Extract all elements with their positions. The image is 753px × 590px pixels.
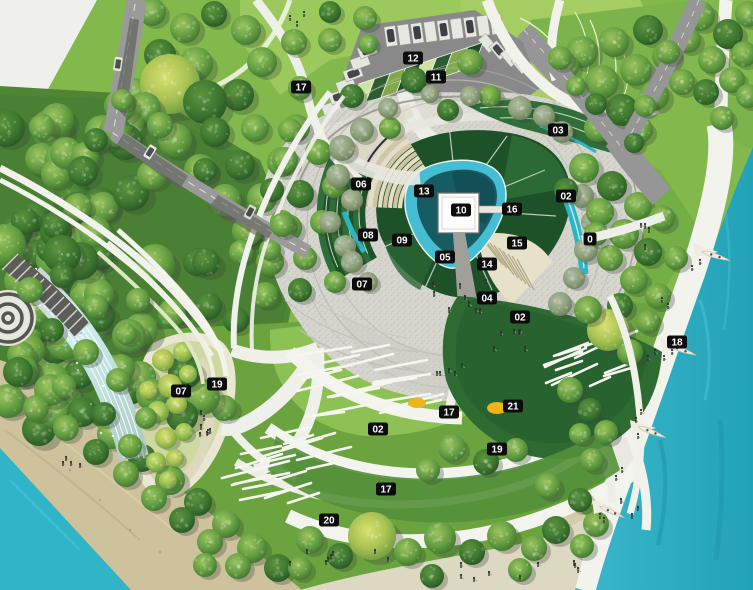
svg-text:09: 09 [396,236,408,247]
svg-text:16: 16 [506,205,518,216]
svg-text:20: 20 [323,516,335,527]
svg-text:0: 0 [587,235,593,246]
svg-text:17: 17 [295,83,307,94]
svg-text:18: 18 [671,338,683,349]
svg-text:03: 03 [552,126,564,137]
svg-text:14: 14 [481,260,493,271]
svg-text:11: 11 [431,73,442,84]
svg-text:07: 07 [175,387,187,398]
svg-text:04: 04 [481,294,493,305]
svg-text:02: 02 [372,425,384,436]
svg-text:07: 07 [356,280,368,291]
svg-text:15: 15 [511,239,523,250]
svg-text:19: 19 [211,380,223,391]
svg-text:08: 08 [362,231,374,242]
svg-text:05: 05 [439,253,451,264]
svg-text:19: 19 [491,445,503,456]
svg-text:02: 02 [560,192,572,203]
svg-text:06: 06 [355,180,367,191]
svg-text:13: 13 [418,187,430,198]
svg-text:12: 12 [407,54,419,65]
svg-text:02: 02 [514,313,526,324]
svg-text:10: 10 [455,206,467,217]
svg-text:17: 17 [380,485,392,496]
svg-text:21: 21 [507,402,519,413]
svg-text:17: 17 [443,408,455,419]
